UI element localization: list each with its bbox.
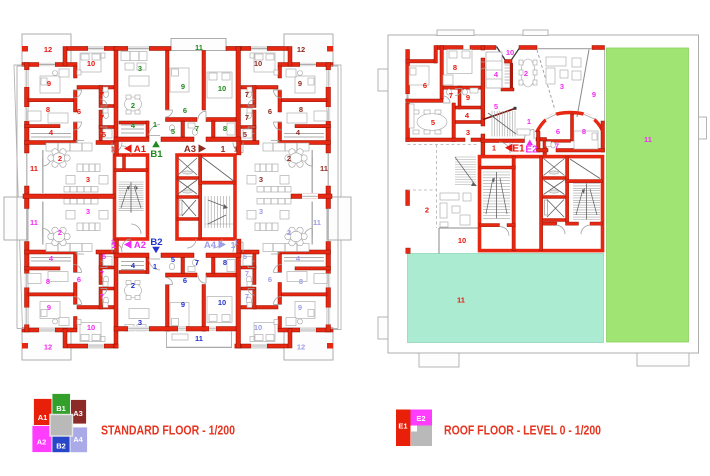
svg-text:10: 10	[218, 84, 226, 93]
svg-text:A1: A1	[38, 413, 48, 422]
svg-text:12: 12	[297, 45, 305, 54]
svg-text:8: 8	[299, 277, 303, 286]
svg-text:A3: A3	[73, 409, 83, 418]
svg-text:9: 9	[181, 300, 185, 309]
svg-text:B2: B2	[56, 442, 66, 451]
svg-text:1: 1	[527, 117, 531, 126]
svg-text:11: 11	[644, 135, 652, 144]
svg-text:9: 9	[298, 79, 302, 88]
svg-text:7: 7	[245, 113, 249, 122]
svg-text:8: 8	[299, 105, 303, 114]
svg-text:ROOF FLOOR - LEVEL 0 - 1/200: ROOF FLOOR - LEVEL 0 - 1/200	[444, 423, 601, 438]
svg-text:6: 6	[423, 81, 427, 90]
svg-text:11: 11	[313, 218, 321, 227]
svg-text:3: 3	[86, 175, 90, 184]
svg-text:8: 8	[223, 124, 227, 133]
svg-text:7: 7	[100, 113, 104, 122]
svg-text:2: 2	[287, 228, 291, 237]
svg-text:E2: E2	[525, 145, 538, 156]
svg-text:9: 9	[181, 82, 185, 91]
svg-text:B1: B1	[56, 404, 66, 413]
svg-text:11: 11	[195, 334, 203, 343]
svg-text:7: 7	[245, 292, 249, 301]
svg-text:6: 6	[77, 107, 81, 116]
svg-text:5: 5	[171, 127, 175, 136]
svg-text:2: 2	[425, 206, 429, 215]
svg-text:A3: A3	[184, 144, 196, 155]
svg-text:5: 5	[171, 255, 175, 264]
svg-text:1: 1	[153, 120, 157, 129]
svg-text:9: 9	[298, 303, 302, 312]
svg-text:12: 12	[44, 343, 52, 352]
svg-text:7: 7	[245, 269, 249, 278]
svg-text:B2: B2	[150, 237, 162, 248]
svg-text:8: 8	[582, 127, 586, 136]
svg-text:7: 7	[245, 90, 249, 99]
svg-text:9: 9	[592, 90, 596, 99]
svg-text:2: 2	[58, 154, 62, 163]
svg-text:8: 8	[223, 258, 227, 267]
svg-text:10: 10	[87, 323, 95, 332]
svg-text:7: 7	[195, 258, 199, 267]
svg-text:3: 3	[86, 207, 90, 216]
svg-text:7: 7	[100, 292, 104, 301]
svg-text:2: 2	[131, 101, 135, 110]
svg-text:12: 12	[297, 343, 305, 352]
svg-text:A2: A2	[134, 240, 146, 251]
svg-text:6: 6	[183, 276, 187, 285]
svg-text:7: 7	[449, 91, 453, 100]
svg-text:11: 11	[457, 296, 465, 305]
svg-text:5: 5	[494, 102, 498, 111]
svg-text:7: 7	[555, 142, 559, 151]
svg-text:5: 5	[243, 252, 247, 261]
svg-text:10: 10	[218, 298, 226, 307]
svg-text:1: 1	[221, 144, 226, 154]
svg-text:3: 3	[466, 128, 470, 137]
svg-text:7: 7	[100, 269, 104, 278]
svg-text:6: 6	[268, 107, 272, 116]
svg-text:8: 8	[46, 277, 50, 286]
svg-text:10: 10	[254, 59, 262, 68]
svg-text:3: 3	[560, 82, 564, 91]
svg-text:3: 3	[138, 318, 142, 327]
svg-text:5: 5	[102, 252, 106, 261]
svg-text:2: 2	[131, 281, 135, 290]
svg-text:10: 10	[458, 236, 466, 245]
svg-text:1: 1	[111, 145, 115, 154]
svg-text:E2: E2	[416, 414, 425, 423]
svg-text:1: 1	[234, 145, 238, 154]
svg-text:1: 1	[231, 240, 236, 250]
svg-text:7: 7	[195, 124, 199, 133]
svg-text:2: 2	[524, 69, 528, 78]
svg-text:1: 1	[112, 240, 117, 250]
svg-text:1: 1	[492, 144, 496, 153]
svg-text:6: 6	[77, 275, 81, 284]
svg-text:6: 6	[556, 127, 560, 136]
svg-text:12: 12	[44, 45, 52, 54]
svg-text:1: 1	[153, 262, 157, 271]
svg-text:10: 10	[506, 48, 514, 57]
svg-text:10: 10	[254, 323, 262, 332]
svg-text:3: 3	[259, 207, 263, 216]
svg-text:11: 11	[195, 43, 203, 52]
svg-text:5: 5	[431, 118, 435, 127]
svg-text:STANDARD FLOOR - 1/200: STANDARD FLOOR - 1/200	[101, 423, 235, 438]
svg-text:A4: A4	[204, 240, 217, 251]
svg-text:3: 3	[138, 64, 142, 73]
svg-text:6: 6	[183, 106, 187, 115]
svg-text:B1: B1	[150, 149, 163, 160]
svg-text:E1: E1	[512, 144, 525, 155]
svg-text:A1: A1	[134, 144, 147, 155]
svg-text:11: 11	[320, 164, 328, 173]
svg-text:11: 11	[30, 218, 38, 227]
svg-text:A4: A4	[73, 435, 83, 444]
svg-text:11: 11	[30, 164, 38, 173]
svg-text:8: 8	[46, 105, 50, 114]
svg-text:2: 2	[287, 154, 291, 163]
svg-text:5: 5	[243, 130, 247, 139]
svg-text:9: 9	[47, 303, 51, 312]
svg-text:E1: E1	[398, 422, 407, 431]
svg-text:6: 6	[268, 275, 272, 284]
svg-text:A2: A2	[37, 438, 47, 447]
svg-text:2: 2	[58, 228, 62, 237]
svg-text:9: 9	[47, 79, 51, 88]
svg-text:5: 5	[102, 130, 106, 139]
svg-text:8: 8	[453, 63, 457, 72]
svg-text:9: 9	[466, 93, 470, 102]
svg-text:10: 10	[87, 59, 95, 68]
svg-text:3: 3	[259, 175, 263, 184]
svg-text:7: 7	[100, 90, 104, 99]
